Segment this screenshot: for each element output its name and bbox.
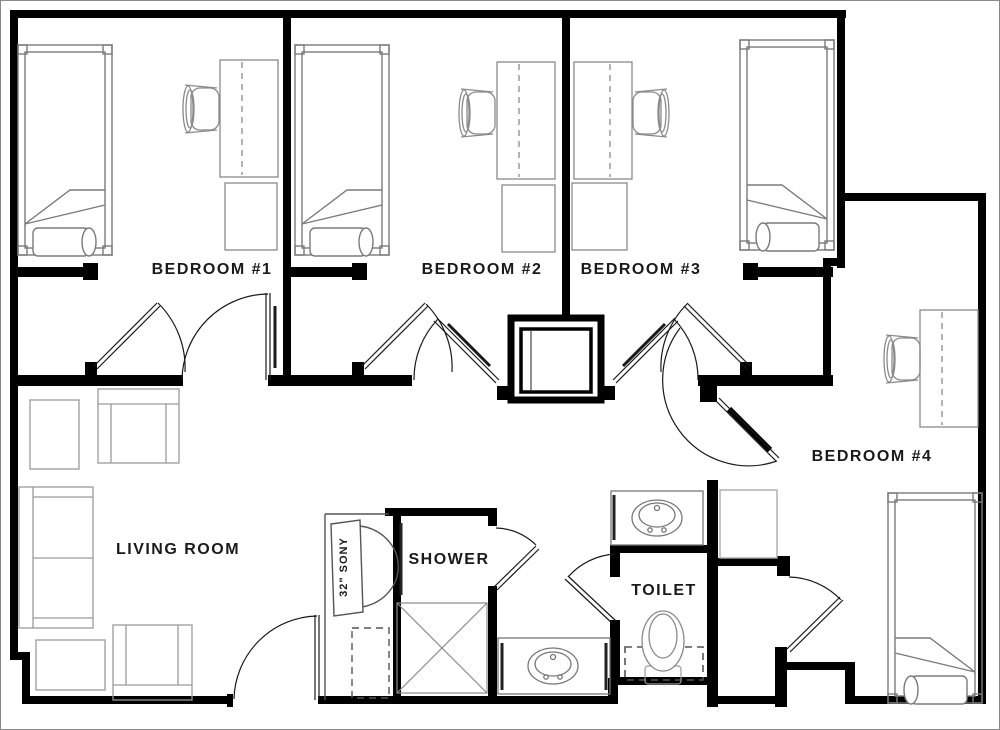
tv-console <box>325 514 398 700</box>
side-table <box>36 640 105 690</box>
door-swing <box>787 577 843 652</box>
doors <box>94 293 843 700</box>
dresser-bedroom2 <box>502 185 555 252</box>
dresser-bedroom3 <box>572 183 627 250</box>
room-labels: BEDROOM #1 BEDROOM #2 BEDROOM #3 BEDROOM… <box>116 261 932 599</box>
door-swing <box>234 615 319 700</box>
closet-shelf <box>720 490 777 558</box>
door-swing <box>565 554 616 624</box>
door-swing <box>494 528 539 590</box>
chair-bedroom3 <box>633 89 669 137</box>
shower-stall <box>397 523 487 693</box>
vanity-sink-bottom <box>498 638 610 694</box>
door-swing <box>414 318 499 383</box>
door-swing <box>182 293 275 380</box>
image-border <box>1 1 1000 730</box>
label-shower: SHOWER <box>409 551 490 568</box>
floor-plan: BEDROOM #1 BEDROOM #2 BEDROOM #3 BEDROOM… <box>0 0 1000 730</box>
vanity-sink-hall <box>611 491 703 545</box>
door-swing <box>613 318 698 383</box>
label-toilet: TOILET <box>631 582 697 599</box>
label-tv: 32" SONY <box>338 537 350 597</box>
label-bedroom3: BEDROOM #3 <box>581 261 702 278</box>
tv-shelf <box>352 628 389 698</box>
sofa <box>19 487 93 628</box>
side-table <box>30 400 79 469</box>
walls <box>10 10 986 707</box>
dresser-bedroom1 <box>225 183 277 250</box>
desk-bedroom2 <box>497 62 555 179</box>
label-bedroom2: BEDROOM #2 <box>422 261 543 278</box>
chair-bedroom1 <box>183 85 219 133</box>
armchair <box>98 389 179 463</box>
chair-bedroom4 <box>884 335 920 383</box>
armchair <box>113 625 192 700</box>
desk-bedroom1 <box>220 60 278 177</box>
bed-bedroom4 <box>888 493 982 704</box>
label-living-room: LIVING ROOM <box>116 541 240 558</box>
toilet-fixture <box>625 611 703 684</box>
label-bedroom4: BEDROOM #4 <box>812 448 933 465</box>
diagonal-wall <box>729 409 770 450</box>
crt-tube <box>360 526 398 607</box>
bed-bedroom3 <box>740 40 834 251</box>
bed-bedroom2 <box>295 45 389 256</box>
chair-bedroom2 <box>459 89 495 137</box>
bed-bedroom1 <box>18 45 112 256</box>
door-swing <box>362 303 452 372</box>
label-bedroom1: BEDROOM #1 <box>152 261 273 278</box>
desk-bedroom3 <box>574 62 632 179</box>
desk-bedroom4 <box>920 310 978 427</box>
central-chase <box>511 318 601 400</box>
door-swing <box>94 303 185 372</box>
